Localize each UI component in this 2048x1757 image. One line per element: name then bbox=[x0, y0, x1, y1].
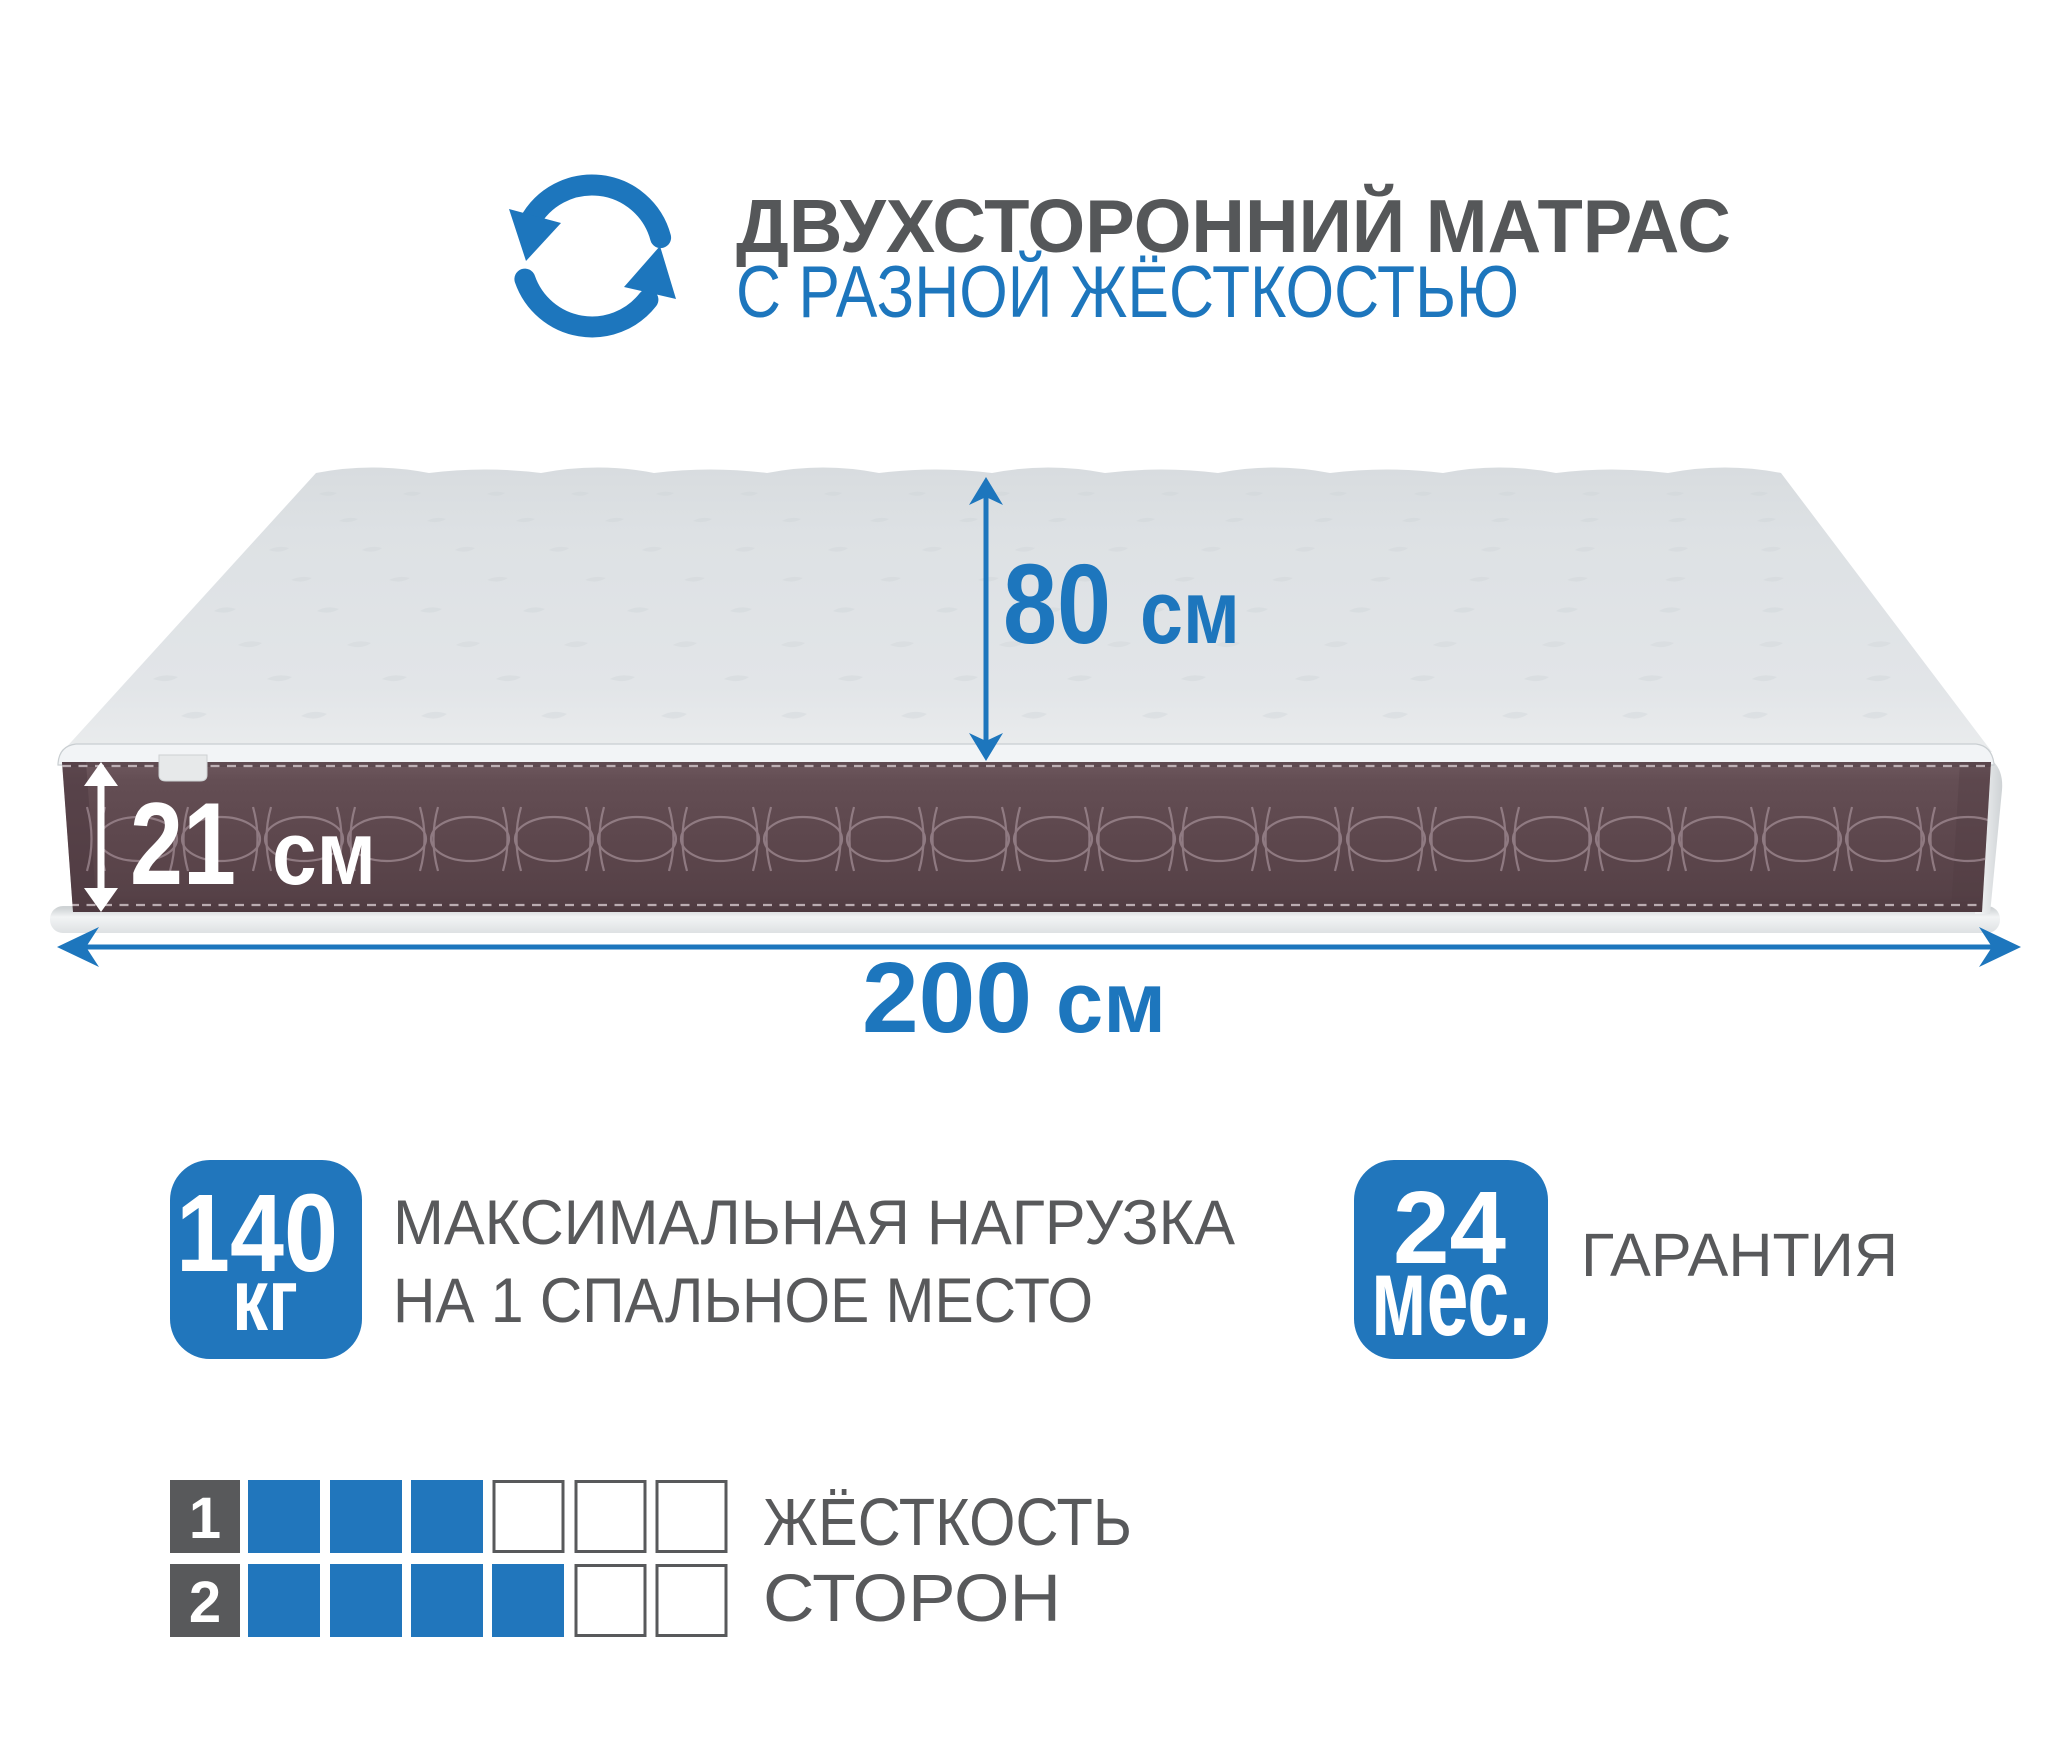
svg-text:см: см bbox=[272, 804, 376, 904]
svg-text:С РАЗНОЙ ЖЁСТКОСТЬЮ: С РАЗНОЙ ЖЁСТКОСТЬЮ bbox=[736, 251, 1519, 333]
svg-text:2: 2 bbox=[189, 1570, 221, 1635]
svg-text:см: см bbox=[1140, 563, 1240, 663]
svg-text:МАКСИМАЛЬНАЯ НАГРУЗКА: МАКСИМАЛЬНАЯ НАГРУЗКА bbox=[393, 1188, 1235, 1258]
svg-text:кг: кг bbox=[232, 1250, 298, 1349]
svg-text:200: 200 bbox=[862, 942, 1032, 1054]
svg-text:мес.: мес. bbox=[1371, 1234, 1530, 1359]
svg-text:21: 21 bbox=[130, 778, 236, 909]
svg-text:см: см bbox=[1056, 955, 1166, 1051]
svg-text:ЖЁСТКОСТЬ: ЖЁСТКОСТЬ bbox=[763, 1485, 1132, 1560]
svg-text:80: 80 bbox=[1003, 541, 1111, 667]
svg-text:1: 1 bbox=[189, 1486, 221, 1551]
svg-text:ГАРАНТИЯ: ГАРАНТИЯ bbox=[1581, 1221, 1898, 1289]
svg-text:СТОРОН: СТОРОН bbox=[763, 1561, 1061, 1636]
svg-text:НА 1 СПАЛЬНОЕ МЕСТО: НА 1 СПАЛЬНОЕ МЕСТО bbox=[393, 1266, 1093, 1336]
